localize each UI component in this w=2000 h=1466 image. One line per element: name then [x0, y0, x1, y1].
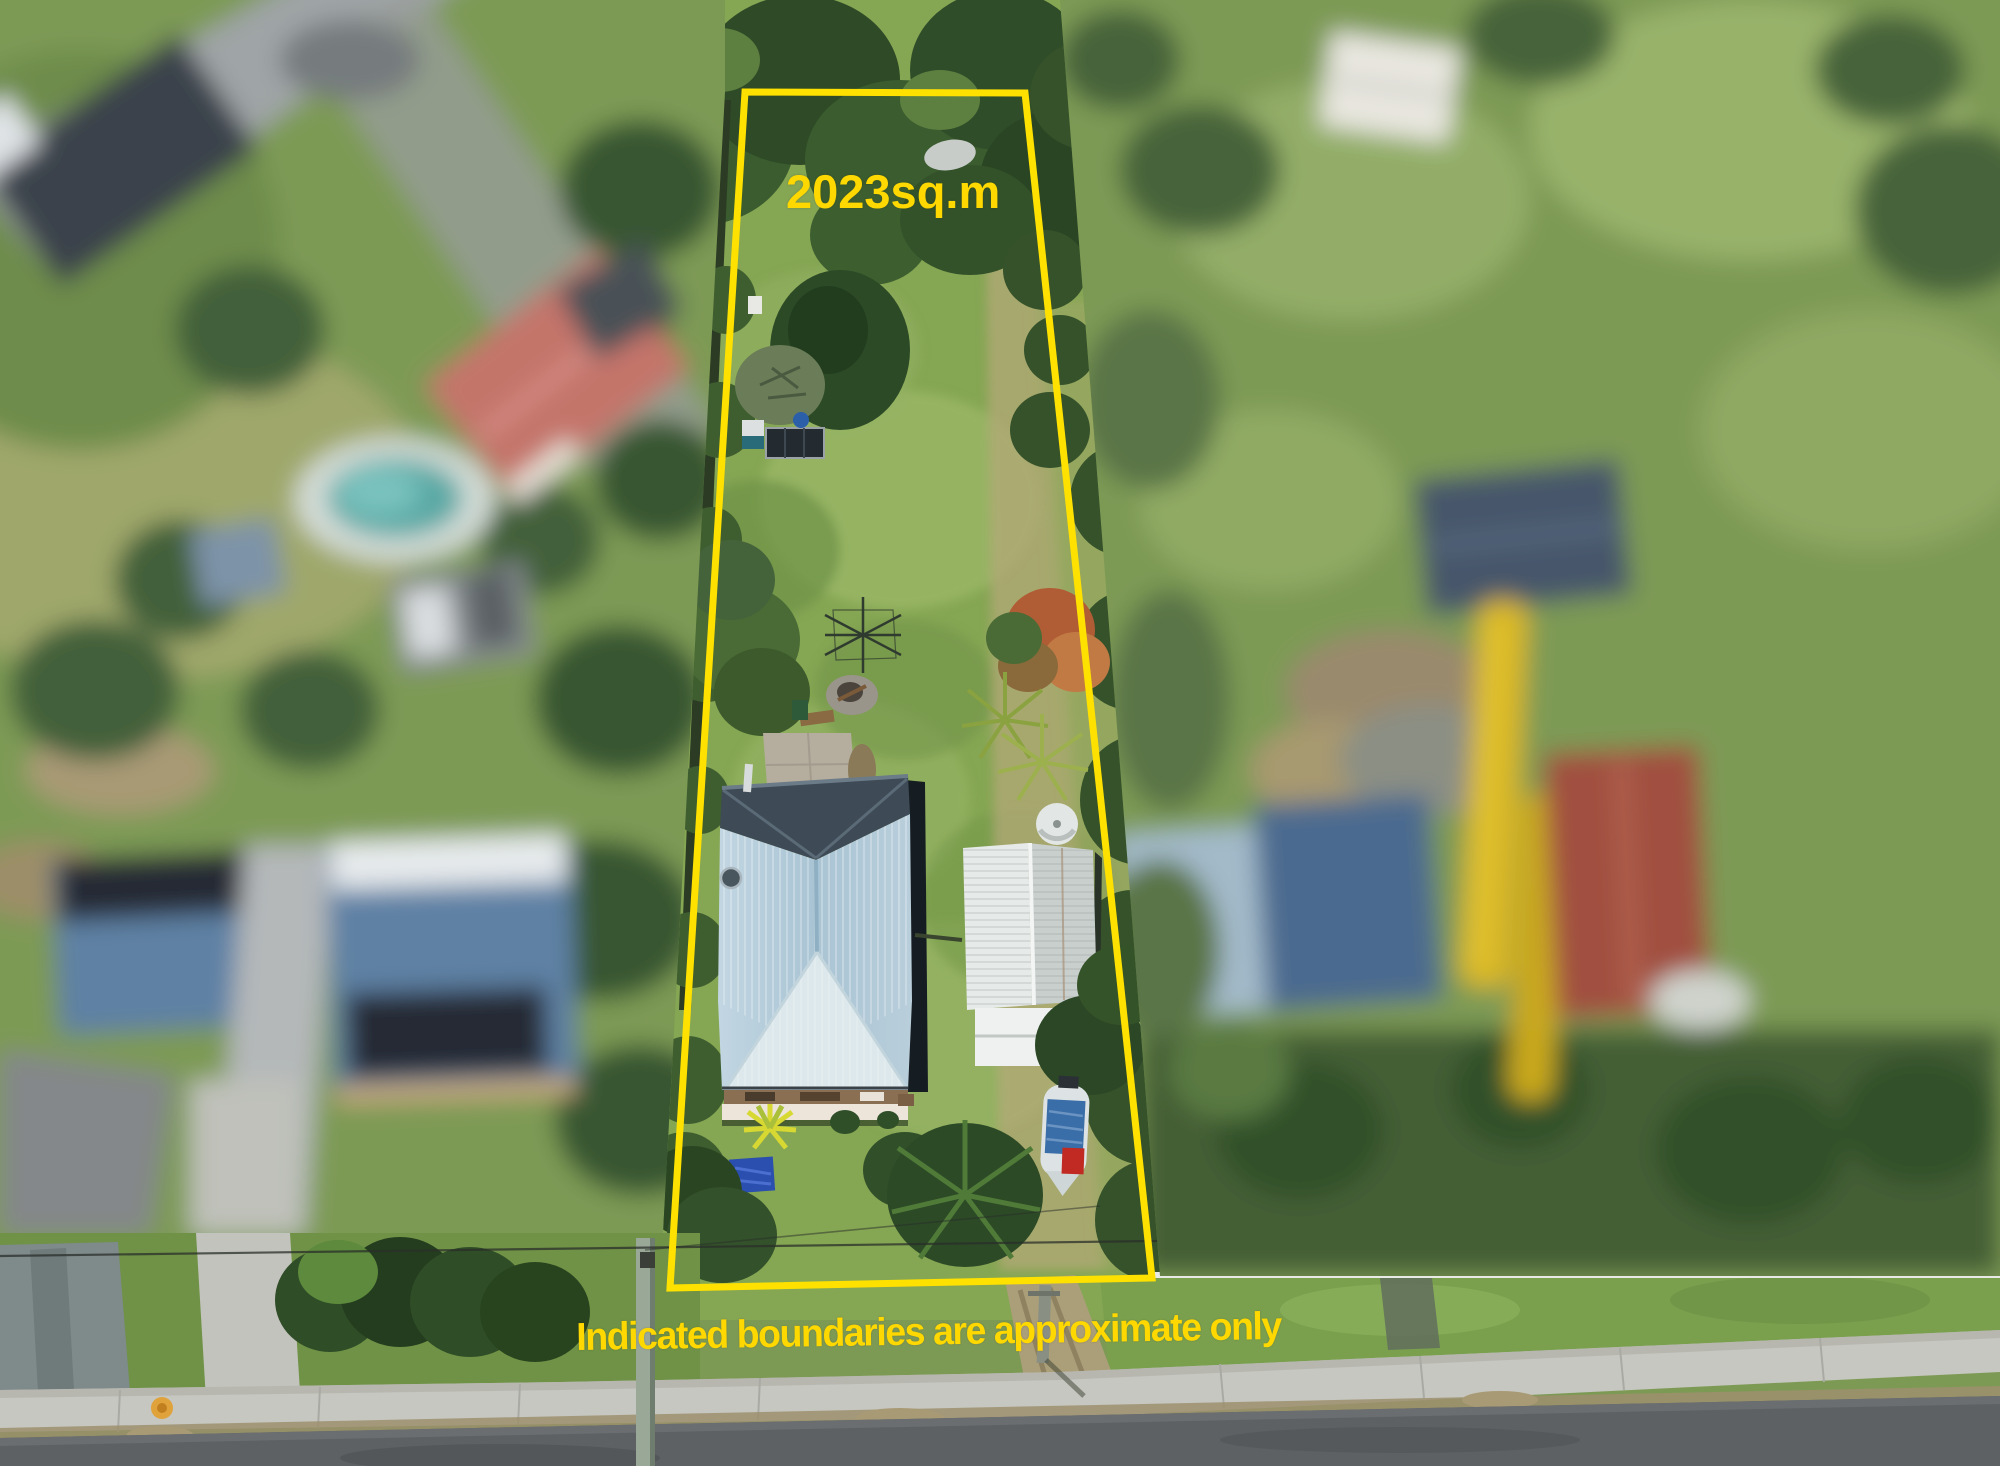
area-label: 2023sq.m	[786, 164, 1000, 219]
aerial-photo	[0, 0, 2000, 1466]
blurred-house-solar-left	[51, 850, 265, 1035]
blurred-sheds-left	[389, 561, 536, 674]
aerial-photo-container: 2023sq.m Indicated boundaries are approx…	[0, 0, 2000, 1466]
main-house	[718, 764, 928, 1126]
blurred-house-blueroof	[1414, 459, 1632, 615]
red-bin	[1062, 1148, 1085, 1175]
blurred-house-solar-right	[325, 834, 579, 1104]
water-tank	[1036, 803, 1078, 845]
satellite-dish	[721, 868, 741, 888]
blurred-shed-topright	[1319, 31, 1461, 143]
blurred-pool	[295, 438, 495, 562]
